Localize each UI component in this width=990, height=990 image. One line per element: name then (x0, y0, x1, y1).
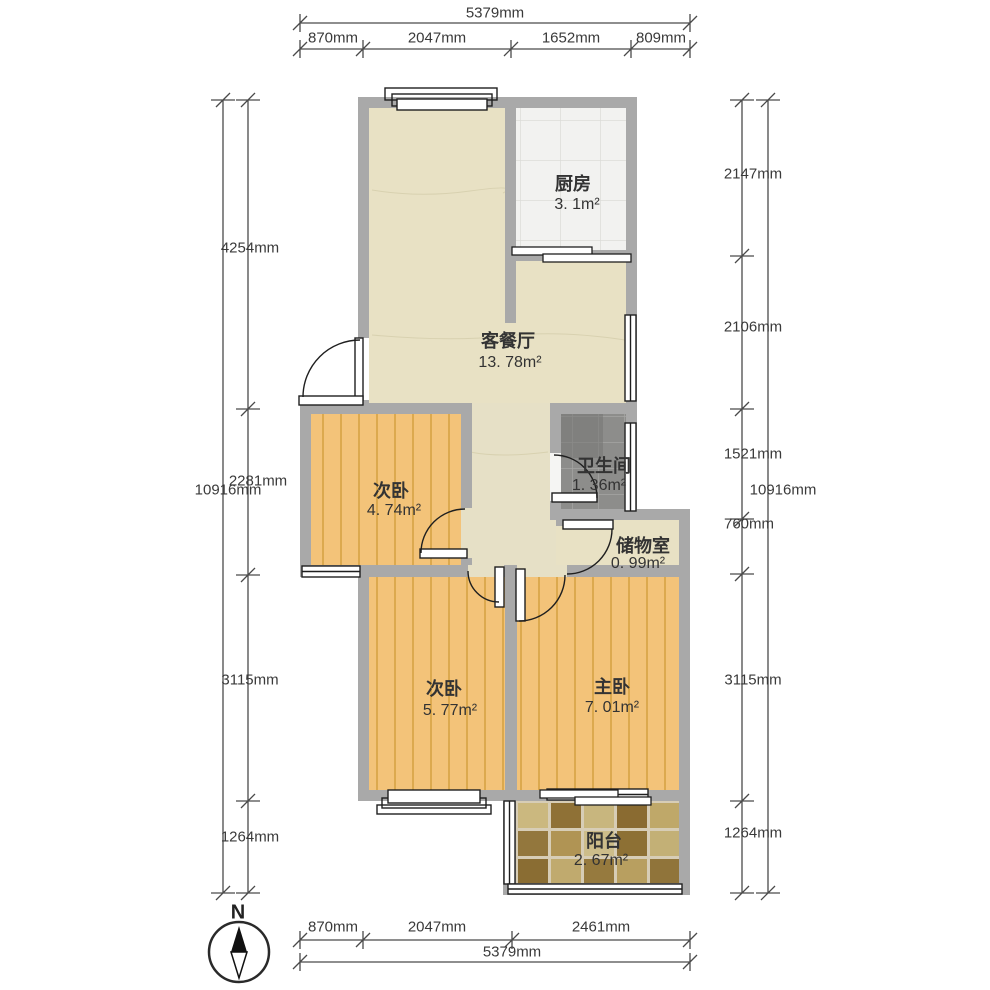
room-label-master-name: 主卧 (594, 673, 630, 699)
room-label-bedroom2a-area: 4. 74m² (367, 502, 421, 520)
dim-top-segment-0-label: 870mm (308, 30, 358, 47)
dim-left-segment-2-label: 3115mm (221, 672, 278, 689)
dim-top-segment-3-label: 809mm (636, 30, 686, 47)
room-label-bedroom2a-name: 次卧 (373, 477, 409, 503)
dim-bottom-segment-1-label: 2047mm (408, 919, 466, 936)
room-label-bathroom-name: 卫生间 (577, 452, 631, 478)
dim-top-total-label: 5379mm (466, 5, 524, 22)
room-label-master-area: 7. 01m² (585, 699, 639, 717)
dim-right-segment-4-label: 3115mm (724, 672, 781, 689)
dim-left-segment-3-label: 1264mm (221, 829, 279, 846)
dim-right-segment-5-label: 1264mm (724, 825, 782, 842)
floor-plan: 厨房 3. 1m² 客餐厅 13. 78m² 卫生间 1. 36m² 储物室 0… (0, 0, 990, 990)
compass-icon (209, 922, 269, 982)
dim-bottom-segment-2-label: 2461mm (572, 919, 630, 936)
room-label-balcony-area: 2. 67m² (574, 852, 628, 870)
room-label-living-area: 13. 78m² (478, 354, 541, 372)
dim-left-segment-0-label: 4254mm (221, 240, 279, 257)
dim-bottom-segment-0-label: 870mm (308, 919, 358, 936)
room-label-kitchen-name: 厨房 (555, 170, 591, 196)
dim-right-total-label: 10916mm (750, 482, 817, 499)
floor-plan-drawing (0, 0, 990, 990)
dim-left-total-label: 10916mm (195, 482, 262, 499)
room-label-balcony-name: 阳台 (586, 827, 622, 853)
dim-right-segment-2-label: 1521mm (724, 446, 782, 463)
dim-right-segment-3-label: 760mm (724, 516, 774, 533)
dim-bottom-total-label: 5379mm (483, 944, 541, 961)
dim-right-segment-1-label: 2106mm (724, 319, 782, 336)
dim-top-segment-2-label: 1652mm (542, 30, 600, 47)
compass-north-label: N (231, 902, 245, 925)
room-label-bedroom2b-name: 次卧 (426, 675, 462, 701)
dim-top-segment-1-label: 2047mm (408, 30, 466, 47)
room-label-kitchen-area: 3. 1m² (554, 196, 599, 214)
dim-right-segment-0-label: 2147mm (724, 166, 782, 183)
room-label-storage-area: 0. 99m² (611, 555, 665, 573)
room-label-living-name: 客餐厅 (481, 327, 535, 353)
room-label-bedroom2b-area: 5. 77m² (423, 702, 477, 720)
room-label-bathroom-area: 1. 36m² (572, 477, 626, 495)
